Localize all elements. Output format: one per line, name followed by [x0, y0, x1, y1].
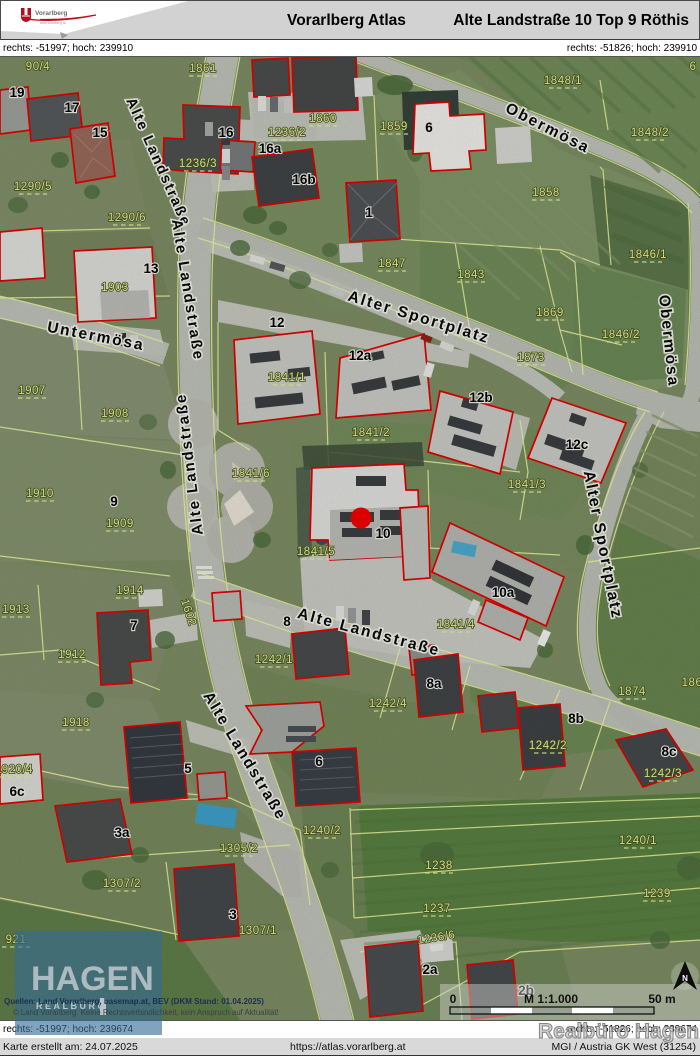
svg-text:12c: 12c: [566, 437, 589, 452]
svg-text:1847: 1847: [378, 258, 406, 270]
svg-text:12: 12: [269, 315, 284, 330]
svg-text:0: 0: [450, 992, 457, 1006]
svg-text:3a: 3a: [114, 825, 130, 840]
svg-text:1240/1: 1240/1: [619, 835, 657, 847]
svg-text:16b: 16b: [292, 172, 315, 187]
svg-text:1913: 1913: [2, 604, 30, 616]
svg-text:1874: 1874: [618, 686, 646, 698]
svg-text:1841/3: 1841/3: [508, 479, 546, 491]
svg-text:1841/1: 1841/1: [268, 372, 306, 384]
svg-text:12a: 12a: [349, 348, 372, 363]
svg-text:1236/2: 1236/2: [268, 127, 306, 139]
svg-text:1918: 1918: [62, 717, 90, 729]
svg-text:1305/2: 1305/2: [220, 843, 258, 855]
svg-text:1242/1: 1242/1: [255, 654, 293, 666]
svg-text:1843: 1843: [457, 269, 485, 281]
svg-text:1307/2: 1307/2: [103, 878, 141, 890]
svg-text:1307/1: 1307/1: [239, 925, 277, 937]
svg-text:1903: 1903: [101, 282, 129, 294]
svg-text:1920/4: 1920/4: [0, 764, 33, 776]
svg-text:1: 1: [365, 205, 373, 220]
svg-text:1841/6: 1841/6: [232, 468, 270, 480]
svg-text:1858: 1858: [532, 187, 560, 199]
svg-text:1873: 1873: [517, 352, 545, 364]
svg-text:10a: 10a: [492, 585, 515, 600]
svg-text:17: 17: [64, 100, 79, 115]
svg-text:6c: 6c: [9, 784, 25, 799]
svg-text:1841/2: 1841/2: [352, 427, 390, 439]
svg-text:1910: 1910: [26, 488, 54, 500]
svg-text:1238: 1238: [425, 860, 453, 872]
svg-text:1242/4: 1242/4: [369, 698, 407, 710]
svg-text:186: 186: [682, 677, 700, 689]
svg-text:16a: 16a: [259, 141, 282, 156]
svg-text:9: 9: [110, 494, 118, 509]
svg-text:1909: 1909: [106, 518, 134, 530]
svg-text:3: 3: [229, 907, 237, 922]
svg-text:1290/5: 1290/5: [14, 181, 52, 193]
svg-text:1237: 1237: [423, 903, 451, 915]
svg-text:1242/3: 1242/3: [644, 768, 682, 780]
svg-text:2a: 2a: [422, 962, 438, 977]
svg-text:1236/3: 1236/3: [179, 158, 217, 170]
svg-text:6: 6: [425, 120, 433, 135]
svg-text:Vorarlberg: Vorarlberg: [35, 10, 67, 17]
svg-text:1841/4: 1841/4: [437, 619, 475, 631]
svg-text:1912: 1912: [58, 649, 86, 661]
svg-text:M 1:1.000: M 1:1.000: [524, 992, 578, 1006]
svg-text:10: 10: [375, 526, 390, 541]
svg-text:8b: 8b: [568, 711, 584, 726]
svg-text:16: 16: [218, 125, 234, 140]
svg-text:1914: 1914: [116, 585, 144, 597]
svg-text:1846/2: 1846/2: [602, 329, 640, 341]
svg-text:1861: 1861: [189, 63, 217, 75]
svg-text:1848/1: 1848/1: [544, 75, 582, 87]
svg-text:13: 13: [143, 261, 159, 276]
svg-text:www.vorarlberg.at: www.vorarlberg.at: [40, 21, 66, 25]
svg-text:90/4: 90/4: [26, 61, 50, 73]
svg-text:6: 6: [315, 754, 323, 769]
svg-text:1848/2: 1848/2: [631, 127, 669, 139]
svg-text:1860: 1860: [309, 113, 337, 125]
svg-text:19: 19: [9, 85, 24, 100]
svg-text:1907: 1907: [18, 385, 46, 397]
svg-text:1290/6: 1290/6: [108, 212, 146, 224]
svg-text:1846/1: 1846/1: [629, 249, 667, 261]
svg-text:5: 5: [184, 761, 192, 776]
svg-text:1242/2: 1242/2: [529, 740, 567, 752]
svg-text:8c: 8c: [661, 744, 677, 759]
svg-text:1908: 1908: [101, 408, 129, 420]
svg-text:12b: 12b: [469, 390, 492, 405]
svg-text:1240/2: 1240/2: [303, 825, 341, 837]
svg-text:1869: 1869: [536, 307, 564, 319]
svg-text:8a: 8a: [426, 676, 442, 691]
svg-text:15: 15: [92, 125, 108, 140]
svg-text:N: N: [682, 974, 688, 983]
svg-text:7: 7: [130, 618, 138, 633]
svg-text:8: 8: [283, 614, 291, 629]
svg-text:6: 6: [690, 61, 697, 73]
svg-text:1841/5: 1841/5: [297, 546, 335, 558]
svg-text:1859: 1859: [380, 121, 408, 133]
svg-text:1239: 1239: [643, 888, 671, 900]
svg-text:50 m: 50 m: [648, 992, 675, 1006]
